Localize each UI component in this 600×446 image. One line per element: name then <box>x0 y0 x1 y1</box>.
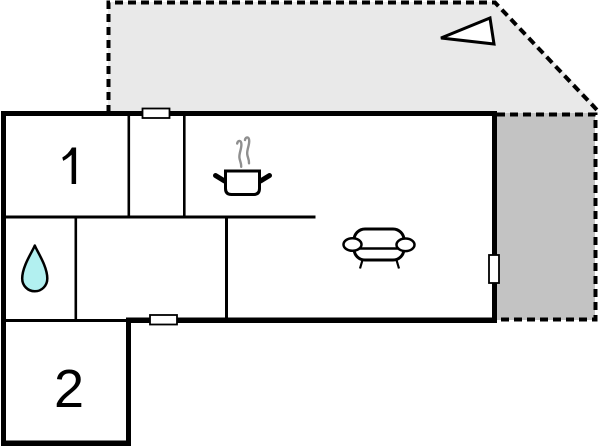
svg-text:2: 2 <box>54 359 84 419</box>
